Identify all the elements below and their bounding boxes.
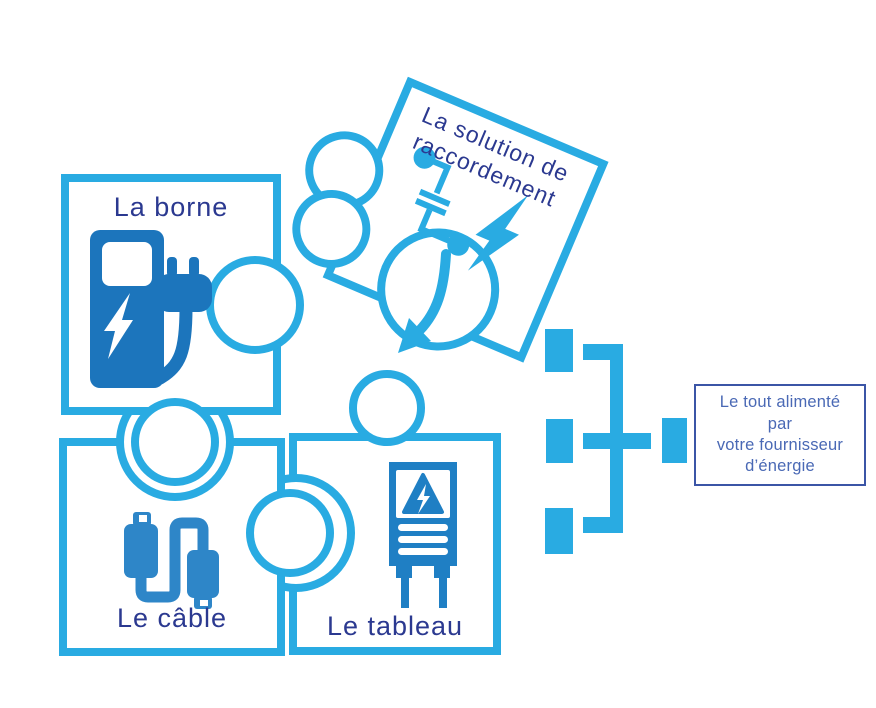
cable-label: Le câble <box>63 603 281 634</box>
notch-right <box>210 260 300 350</box>
supply-line3: votre fournisseur <box>696 435 864 456</box>
connector-block-bottom <box>545 508 573 554</box>
infographic-canvas: La borne Le câble Le tableau La solution… <box>0 0 876 708</box>
supply-line1: Le tout alimenté <box>696 392 864 413</box>
connector-block-top <box>545 329 573 372</box>
connector-bus-bar <box>610 344 623 533</box>
supply-line4: d’énergie <box>696 456 864 477</box>
supply-text-box: Le tout alimenté par votre fournisseur d… <box>694 384 866 486</box>
charger-screen <box>102 242 152 286</box>
connector-block-output <box>662 418 687 463</box>
tableau-tab-top <box>353 374 421 442</box>
borne-label: La borne <box>65 192 277 223</box>
connector-block-middle <box>546 419 573 463</box>
power-supply-connector-icon <box>545 329 687 554</box>
supply-line2: par <box>696 414 864 435</box>
tab-bottom <box>135 402 215 482</box>
cable-tab-right <box>250 493 330 573</box>
tableau-label: Le tableau <box>293 611 497 642</box>
charging-cable-icon <box>124 512 219 609</box>
